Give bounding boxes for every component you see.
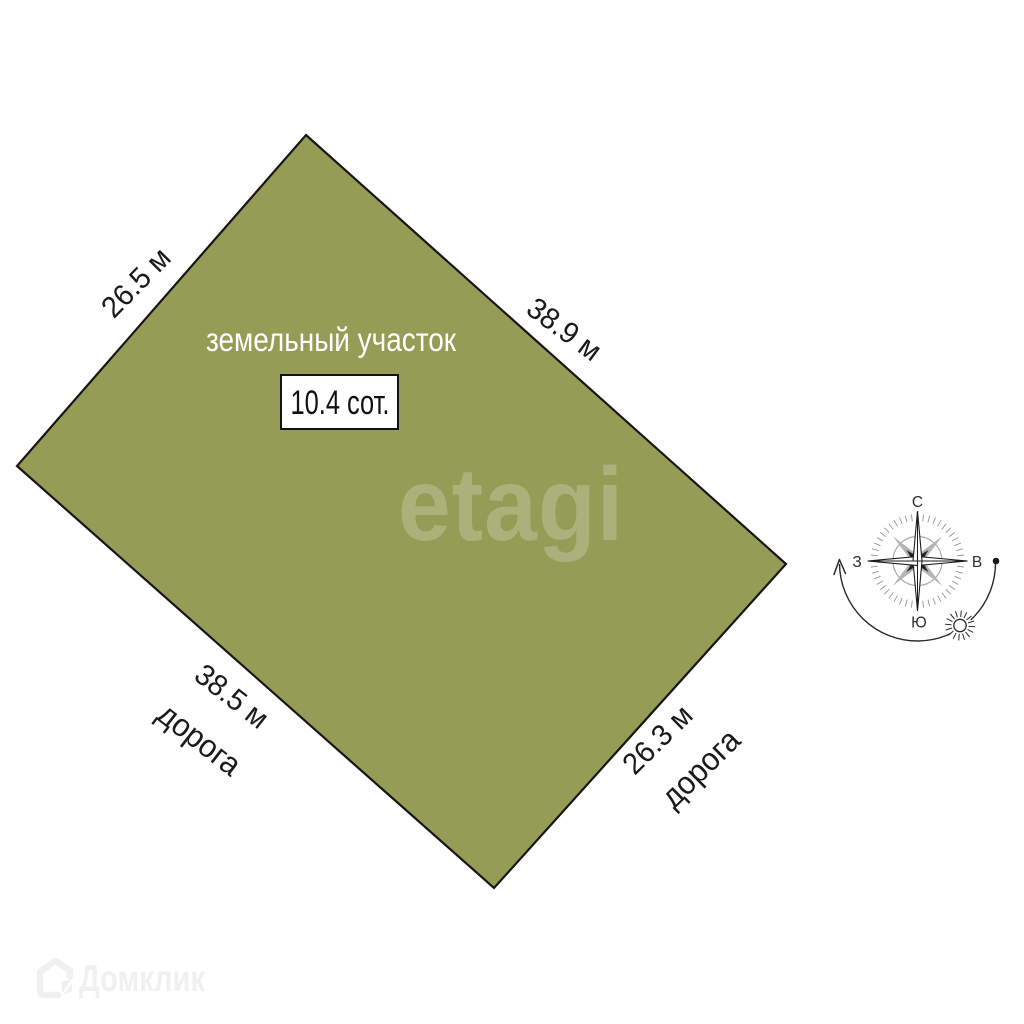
svg-text:10.4 сот.: 10.4 сот. [291, 384, 390, 422]
svg-text:etagi: etagi [398, 447, 624, 563]
svg-text:В: В [972, 554, 982, 571]
svg-text:З: З [852, 554, 861, 571]
svg-text:Домклик: Домклик [79, 958, 205, 999]
svg-text:С: С [912, 494, 923, 511]
svg-text:земельный участок: земельный участок [206, 321, 456, 358]
svg-text:Ю: Ю [911, 615, 927, 632]
